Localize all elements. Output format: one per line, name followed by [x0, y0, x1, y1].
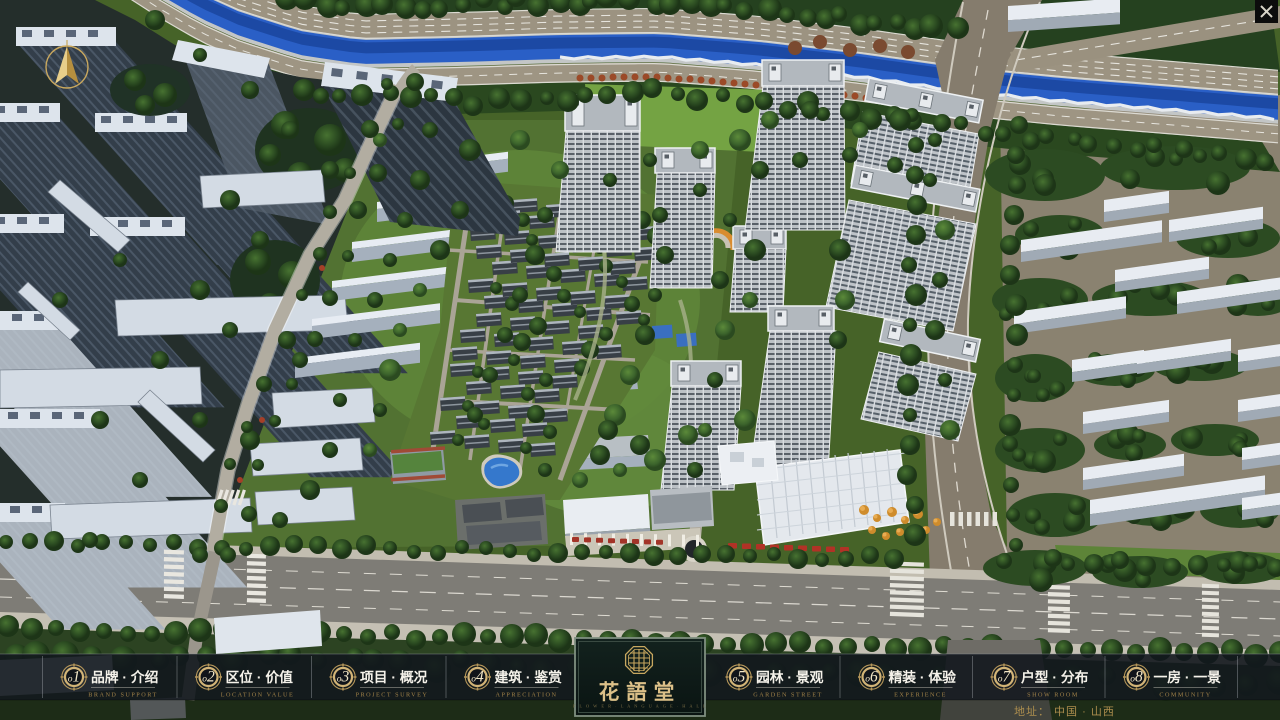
svg-text:COMMUNITY: COMMUNITY	[1159, 692, 1211, 699]
svg-text:精装 · 体验: 精装 · 体验	[889, 669, 957, 685]
svg-text:PROJECT SURVEY: PROJECT SURVEY	[356, 692, 429, 699]
svg-text:建筑 · 鉴赏: 建筑 · 鉴赏	[495, 669, 563, 685]
svg-text:项目 · 概况: 项目 · 概况	[360, 669, 428, 685]
svg-text:品牌 · 介绍: 品牌 · 介绍	[91, 669, 159, 685]
svg-text:F L O W E R · L A N G U A G E: F L O W E R · L A N G U A G E · H A L L	[573, 704, 707, 709]
svg-text:区位 · 价值: 区位 · 价值	[226, 669, 294, 685]
svg-text:一房 · 一景: 一房 · 一景	[1154, 669, 1222, 685]
svg-text:LOCATION VALUE: LOCATION VALUE	[221, 692, 295, 699]
svg-text:园林 · 景观: 园林 · 景观	[756, 669, 824, 685]
svg-text:APPRECIATION: APPRECIATION	[495, 692, 557, 699]
svg-text:户型 · 分布: 户型 · 分布	[1021, 669, 1089, 685]
svg-text:BRAND SUPPORT: BRAND SUPPORT	[88, 692, 158, 699]
svg-text:GARDEN STREET: GARDEN STREET	[753, 692, 823, 699]
svg-text:SHOW ROOM: SHOW ROOM	[1027, 692, 1079, 699]
svg-text:地址： 中国 · 山西: 地址： 中国 · 山西	[1014, 704, 1115, 718]
svg-text:EXPERIENCE: EXPERIENCE	[894, 692, 947, 699]
svg-text:花語堂: 花語堂	[599, 680, 682, 704]
